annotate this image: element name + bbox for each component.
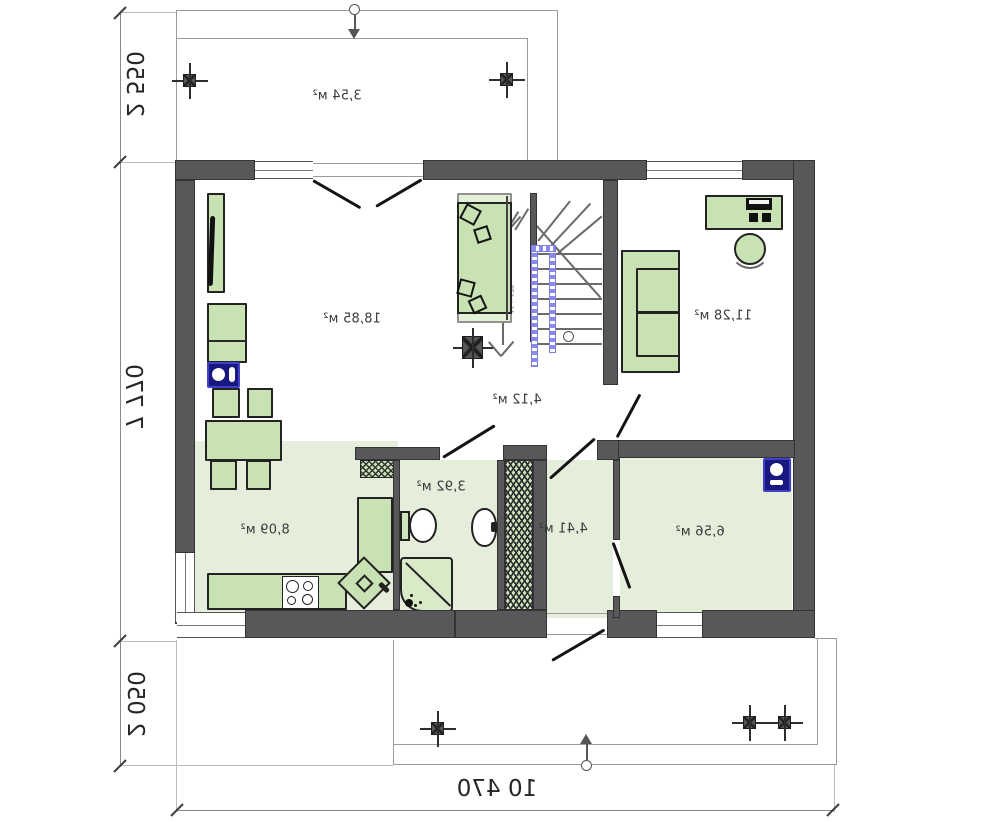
- dishwasher-icon: [360, 460, 397, 478]
- column-marker: [172, 63, 208, 99]
- stair-railing: [549, 253, 556, 353]
- wall-segment: [618, 440, 795, 458]
- room-label-kitchen: 8,09 м²: [240, 523, 290, 538]
- room-label-living: 18,85 м²: [323, 312, 381, 327]
- floor-hall-lower: [547, 460, 613, 618]
- floor-plan: 2 550 7 770 2 050 10 470 3,54 м²: [0, 0, 1000, 822]
- dimension-label-terrace-top: 2 550: [121, 51, 147, 117]
- room-label-terrace-top: 3,54 м²: [312, 89, 362, 104]
- wall-segment: [455, 610, 547, 638]
- wall-segment: [613, 460, 620, 540]
- wall-segment: [355, 447, 440, 460]
- wall-segment: [245, 610, 455, 638]
- wall-segment: [613, 596, 620, 618]
- chair: [247, 388, 273, 418]
- chair: [210, 460, 237, 490]
- room-label-boiler: 6,56 м²: [675, 525, 725, 540]
- wall-segment: [175, 160, 255, 180]
- kitchen-counter-bottom: [207, 573, 347, 610]
- room-label-hall-lower: 4,41 м²: [538, 522, 588, 537]
- room-label-bathroom: 3,92 м²: [416, 480, 466, 495]
- wall-segment: [603, 180, 618, 385]
- room-label-bedroom: 11,28 м²: [694, 309, 752, 324]
- chimney-marker: [453, 328, 493, 368]
- stove-icon: [282, 576, 319, 609]
- wall-segment: [497, 460, 505, 610]
- computer-icon: [746, 198, 772, 210]
- window: [647, 161, 742, 179]
- dimension-label-house-width: 10 470: [457, 776, 537, 802]
- window: [255, 161, 313, 179]
- boiler-icon: [763, 458, 791, 492]
- wall-segment: [503, 445, 547, 460]
- dimension-label-house-depth: 7 770: [120, 364, 146, 430]
- wall-segment: [393, 460, 400, 610]
- column-marker: [489, 62, 525, 98]
- stair-newel: [563, 331, 574, 342]
- chair: [246, 460, 271, 490]
- washing-machine-icon: [207, 362, 240, 388]
- column-marker: [732, 705, 768, 741]
- dimension-label-terrace-bottom: 2 050: [122, 671, 148, 737]
- wardrobe-closet: [505, 460, 533, 610]
- chair: [212, 388, 240, 418]
- wall-segment: [702, 610, 815, 638]
- window: [177, 612, 245, 638]
- stair-railing: [531, 245, 538, 367]
- dining-table: [205, 420, 282, 461]
- cabinet: [207, 303, 247, 363]
- wall-segment: [423, 160, 647, 180]
- column-marker: [767, 705, 803, 741]
- wall-segment: [597, 440, 620, 460]
- stair-railing: [531, 245, 556, 252]
- wall-segment: [793, 160, 815, 638]
- room-label-hall-center: 4,12 м²: [492, 393, 542, 408]
- column-marker: [420, 711, 456, 747]
- entrance-arrow-top: [349, 4, 360, 15]
- window: [657, 612, 702, 638]
- wall-segment: [175, 180, 195, 553]
- entrance-arrow-bottom: [581, 760, 592, 771]
